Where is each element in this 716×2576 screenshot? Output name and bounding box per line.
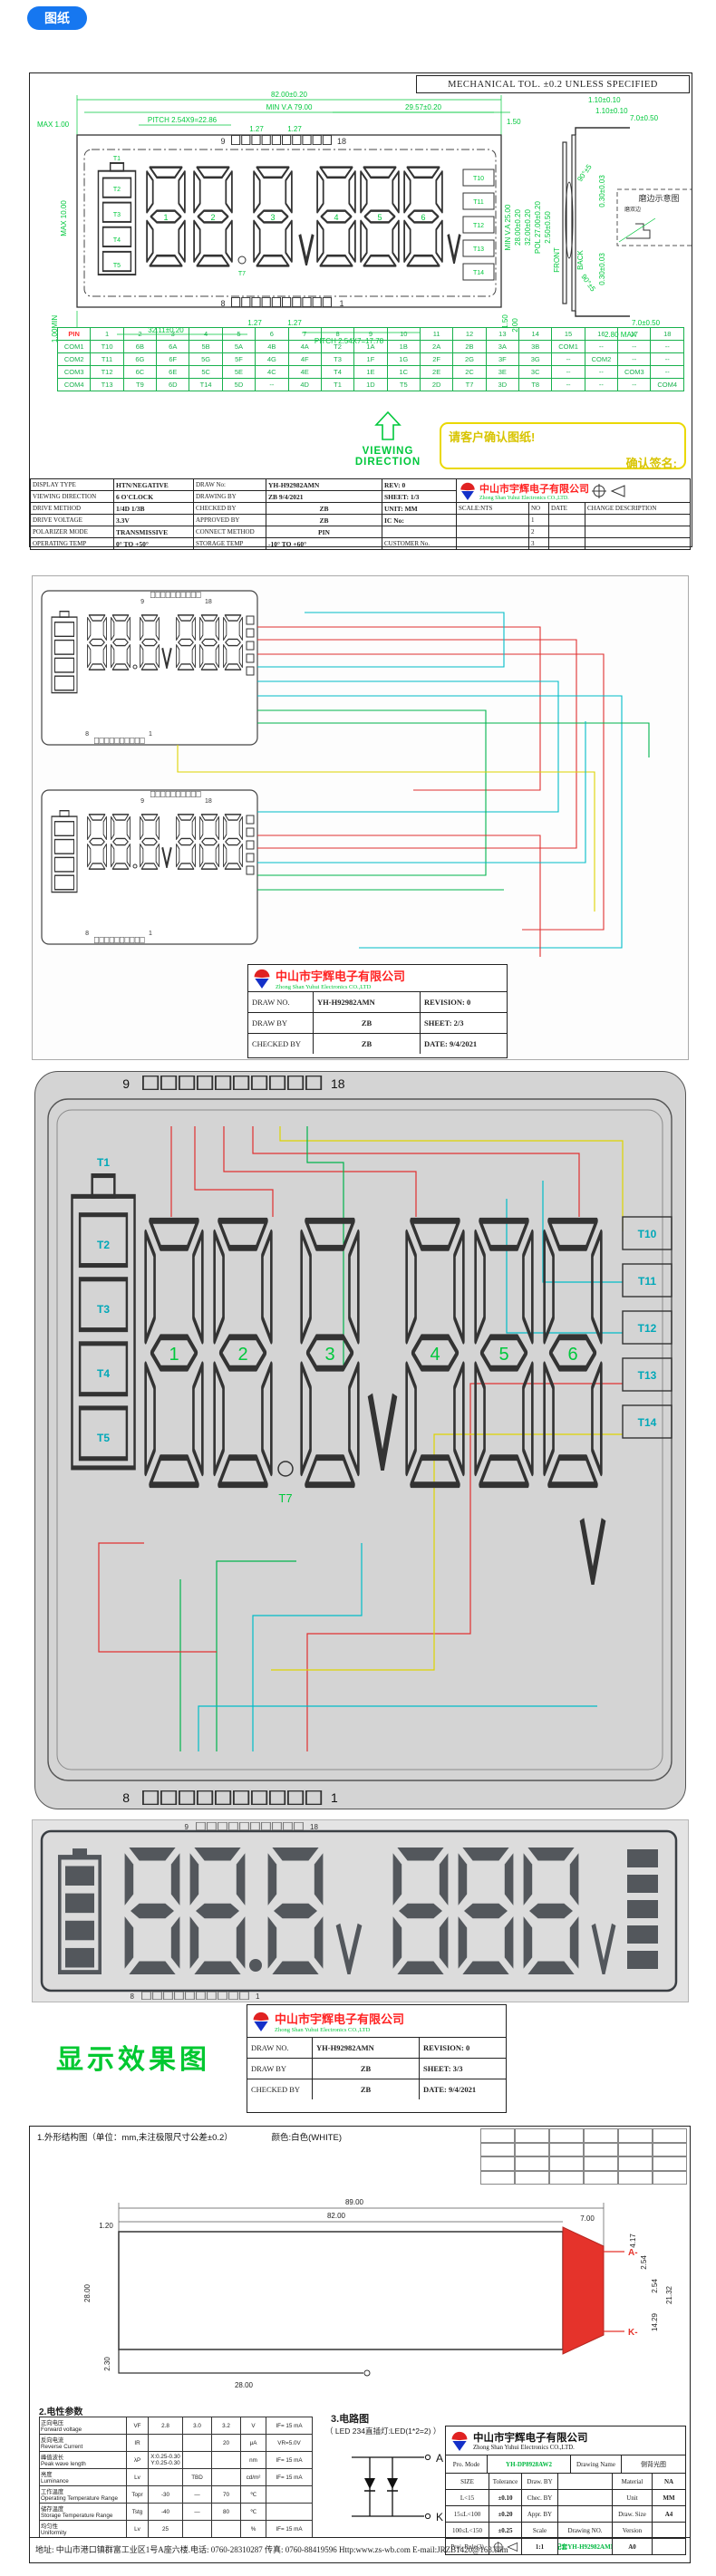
checked-by: ZB: [314, 1034, 421, 1054]
table-cell: --: [585, 366, 617, 379]
spec-label: DISPLAY TYPE: [31, 479, 114, 491]
table-cell: IR: [127, 2435, 149, 2452]
footer-address: 地址: 中山市港口镇群富工业区1号A座六楼.电话: 0760-28310287 …: [30, 2537, 690, 2561]
spec-value: PIN: [266, 526, 382, 538]
backlight-title-block: 中山市宇辉电子有限公司 Zhong Shan Yuhui Electronics…: [445, 2426, 686, 2555]
spec-value: 6 O'CLOCK: [114, 491, 194, 503]
svg-text:MIN V.A 79.00: MIN V.A 79.00: [266, 103, 313, 111]
company-cell: 中山市宇辉电子有限公司 Zhong Shan Yuhui Electronics…: [457, 479, 691, 503]
table-cell: IF= 15 mA: [266, 2417, 313, 2435]
svg-text:1.10±0.10: 1.10±0.10: [595, 107, 628, 115]
svg-text:1: 1: [169, 1345, 179, 1365]
pin-number: 1: [331, 1790, 338, 1805]
table-cell: [266, 2504, 313, 2521]
svg-text:32.00±0.20: 32.00±0.20: [524, 208, 532, 246]
backlight-outline-drawing: A- K- 89.00 82.00 1.20 7.00 28.00 4.17 2…: [37, 2186, 682, 2404]
tolerance-range: L<15: [446, 2490, 489, 2505]
svg-text:T1: T1: [97, 1156, 110, 1169]
svg-text:9: 9: [220, 137, 225, 146]
spec-label: DRAWING BY: [194, 491, 266, 503]
tolerance-range: 15≤L<100: [446, 2506, 489, 2522]
pin-number: 9: [122, 1076, 130, 1091]
empty-cell: [549, 515, 585, 526]
segment-labels: T1 T2 T3 T4 T5 T7 T10 T11 T12 T13 T14 1 …: [97, 1156, 657, 1505]
svg-text:21.32: 21.32: [665, 2285, 673, 2304]
cathode-label: K-: [628, 2328, 638, 2338]
svg-text:FRONT: FRONT: [553, 247, 561, 273]
table-cell: 80: [212, 2504, 241, 2521]
table-cell: T9: [123, 379, 156, 391]
label: SIZE: [446, 2474, 489, 2489]
table-cell: 17: [618, 328, 651, 341]
spec-label: CONNECT METHOD: [194, 526, 266, 538]
table-cell: μA: [241, 2435, 266, 2452]
spec-value: HTN/NEGATIVE: [114, 479, 194, 491]
table-cell: 5D: [222, 379, 255, 391]
table-cell: 18: [651, 328, 684, 341]
table-cell: 工作温度 Operating Temperature Range: [40, 2486, 127, 2504]
table-cell: --: [585, 379, 617, 391]
table-cell: [212, 2452, 241, 2469]
empty-cell: [457, 538, 529, 550]
spec-label: APPROVED BY: [194, 515, 266, 526]
table-cell: 3.2: [212, 2417, 241, 2435]
col-no: NO: [529, 503, 549, 515]
pin-number: 1: [256, 1992, 260, 2001]
label: DRAW BY: [248, 1013, 314, 1033]
spec-unit: UNIT: MM: [382, 503, 457, 515]
svg-text:3: 3: [324, 1345, 334, 1365]
table-cell: 2D: [420, 379, 452, 391]
confirm-signature-label: 确认签名:: [449, 454, 677, 471]
svg-text:T2: T2: [97, 1239, 110, 1251]
unit: MM: [653, 2490, 685, 2505]
revision: REVISION: 0: [420, 2038, 506, 2058]
label: Version: [613, 2523, 653, 2538]
spec-scale: SCALE:NTS: [457, 503, 529, 515]
table-cell: Lv: [127, 2521, 149, 2538]
pin-number: 18: [310, 1823, 318, 1831]
table-cell: T13: [91, 379, 123, 391]
svg-text:2: 2: [210, 213, 215, 222]
svg-text:0.30±0.03: 0.30±0.03: [598, 175, 606, 207]
table-cell: 2B: [453, 341, 486, 353]
row-number: 3: [529, 538, 549, 550]
table-cell: T8: [519, 379, 552, 391]
svg-text:0.30±0.03: 0.30±0.03: [598, 253, 606, 285]
table-cell: 峰值波长 Peak wave length: [40, 2452, 127, 2469]
svg-text:T5: T5: [97, 1432, 110, 1444]
table-cell: T11: [91, 353, 123, 366]
drawing-page: 9 18 8 1 图纸 MECHANICAL TOL. ±0.2 UNLESS …: [0, 0, 716, 2576]
table-cell: 10: [387, 328, 420, 341]
svg-text:T7: T7: [238, 271, 246, 277]
led-connector-wedge: [563, 2227, 604, 2354]
tolerance-value: ±0.25: [489, 2523, 522, 2538]
svg-text:1.10±0.10: 1.10±0.10: [588, 96, 621, 104]
table-cell: 3G: [519, 353, 552, 366]
table-cell: PIN: [58, 328, 91, 341]
svg-text:90°±5: 90°±5: [576, 162, 594, 183]
table-cell: 7: [288, 328, 321, 341]
company-name-en: Zhong Shan Yuhui Electronics CO.,LTD.: [479, 496, 589, 501]
label: Draw. BY: [522, 2474, 558, 2489]
svg-text:BACK: BACK: [576, 249, 585, 269]
table-cell: --: [651, 366, 684, 379]
display-effect-caption: 显示效果图: [56, 2037, 210, 2077]
pin-number: 9: [185, 1823, 189, 1831]
table-cell: 20: [212, 2435, 241, 2452]
spec-value: ZB: [266, 515, 382, 526]
table-cell: 6: [256, 328, 288, 341]
table-cell: 5A: [222, 341, 255, 353]
table-cell: [183, 2435, 212, 2452]
svg-text:MAX 1.00: MAX 1.00: [37, 121, 70, 129]
table-cell: T12: [91, 366, 123, 379]
table-cell: --: [552, 366, 585, 379]
svg-text:4: 4: [334, 213, 338, 222]
company-name-en: Zhong Shan Yuhui Electronics CO.,LTD: [275, 2027, 404, 2033]
customer-confirm-box: 请客户确认图纸! 确认签名:: [440, 422, 686, 469]
table-cell: 2G: [453, 353, 486, 366]
backlight-outline-sheet: 1.外形结构图（单位：mm,未注极限尺寸公差±0.2） 颜色:白色(WHITE)…: [29, 2126, 691, 2563]
table-cell: —: [183, 2486, 212, 2504]
table-cell: 储存温度 Storage Temperature Range: [40, 2504, 127, 2521]
table-cell: -30: [149, 2486, 183, 2504]
svg-text:MIN V.A 25.00: MIN V.A 25.00: [504, 204, 512, 250]
pin-number: 8: [131, 1992, 135, 2001]
table-cell: 11: [420, 328, 452, 341]
table-cell: 6E: [157, 366, 189, 379]
table-cell: 6D: [157, 379, 189, 391]
table-cell: 1A: [354, 341, 387, 353]
pro-mode: YH-DP8928AW2: [488, 2455, 571, 2473]
spec-sheet: SHEET: 1/3: [382, 491, 457, 503]
table-cell: —: [183, 2504, 212, 2521]
table-cell: 4F: [288, 353, 321, 366]
label: Chec. BY: [522, 2490, 558, 2505]
table-cell: 5G: [189, 353, 222, 366]
empty-cell: [549, 538, 585, 550]
up-arrow-icon: [374, 410, 402, 441]
svg-text:POL 27.00±0.20: POL 27.00±0.20: [534, 200, 542, 253]
svg-text:82.00: 82.00: [327, 2212, 346, 2220]
table-cell: Topr: [127, 2486, 149, 2504]
spec-value: YH-H92982AMN: [266, 479, 382, 491]
spec-value: 3.3V: [114, 515, 194, 526]
draw-by: ZB: [313, 2059, 420, 2079]
company-logo-icon: [459, 481, 477, 501]
enlarged-wiring-drawing: 9 18 8 1: [35, 1072, 685, 1809]
table-cell: 1B: [387, 341, 420, 353]
table-cell: 3: [157, 328, 189, 341]
table-cell: λP: [127, 2452, 149, 2469]
tolerance-value: ±0.10: [489, 2490, 522, 2505]
empty-cell: [549, 526, 585, 538]
svg-text:28.00: 28.00: [83, 2283, 92, 2302]
led-circuit-diagram: A K: [338, 2444, 456, 2534]
table-cell: --: [651, 353, 684, 366]
table-cell: 8: [321, 328, 353, 341]
spec-title-block: DISPLAY TYPE HTN/NEGATIVE DRAW No: YH-H9…: [30, 478, 691, 550]
svg-text:T12: T12: [473, 223, 484, 229]
table-cell: T1: [321, 379, 353, 391]
table-cell: --: [651, 341, 684, 353]
sheet-no: SHEET: 2/3: [421, 1013, 507, 1033]
table-cell: [212, 2469, 241, 2486]
table-cell: 1: [91, 328, 123, 341]
table-cell: [266, 2486, 313, 2504]
sheet1-mechanical-drawing: MECHANICAL TOL. ±0.2 UNLESS SPECIFIED: [29, 72, 692, 547]
table-cell: X:0.25-0.30 Y:0.25-0.30: [149, 2452, 183, 2469]
table-cell: COM3: [618, 366, 651, 379]
table-cell: [183, 2521, 212, 2538]
label: DRAW NO.: [247, 2038, 313, 2058]
label: CHECKED BY: [248, 1034, 314, 1054]
svg-text:T3: T3: [113, 212, 121, 218]
table-cell: 4D: [288, 379, 321, 391]
table-cell: T14: [189, 379, 222, 391]
label: Draw. Size: [613, 2506, 653, 2522]
table-cell: 13: [486, 328, 518, 341]
grind-schematic: 磨边示意图 磨双边: [617, 189, 692, 246]
table-cell: --: [585, 341, 617, 353]
display-effect-panel: 9 18 8 1: [32, 1819, 689, 2002]
col-date: DATE: [549, 503, 585, 515]
table-cell: T3: [321, 353, 353, 366]
spec-value: 0° TO +50°: [114, 538, 194, 550]
svg-text:7.0±0.50: 7.0±0.50: [632, 319, 661, 327]
table-cell: 3A: [486, 341, 518, 353]
svg-text:T11: T11: [638, 1275, 656, 1288]
svg-text:1.27: 1.27: [249, 125, 264, 133]
table-cell: 1F: [354, 353, 387, 366]
led-symbol: [387, 2478, 398, 2489]
drawing-name: 侧背光图: [622, 2455, 685, 2473]
table-cell: COM4: [58, 379, 91, 391]
pin-number: 8: [122, 1790, 130, 1805]
material: NA: [653, 2474, 685, 2489]
table-cell: IF= 15 mA: [266, 2521, 313, 2538]
svg-text:82.00±0.20: 82.00±0.20: [271, 91, 308, 99]
table-cell: COM2: [585, 353, 617, 366]
confirm-line1: 请客户确认图纸!: [449, 428, 677, 445]
pin-assignment-table: PIN123456789101112131415161718COM1T106B6…: [57, 327, 684, 391]
electrical-params-title: 2.电性参数: [39, 2404, 82, 2417]
table-cell: 1E: [354, 366, 387, 379]
label: Appr. BY: [522, 2506, 558, 2522]
sheet-no: SHEET: 3/3: [420, 2059, 506, 2079]
svg-text:29.57±0.20: 29.57±0.20: [405, 103, 442, 111]
electrical-params-table: 正向电压 Forward voltageVF2.83.03.2VIF= 15 m…: [39, 2417, 313, 2538]
signal-bars: [627, 1849, 658, 1969]
label: Tolerance: [489, 2474, 522, 2489]
svg-text:1: 1: [163, 213, 168, 222]
table-cell: 15: [552, 328, 585, 341]
spec-value: 1/4D 1/3B: [114, 503, 194, 515]
svg-text:T4: T4: [97, 1367, 110, 1380]
table-cell: Tstg: [127, 2504, 149, 2521]
svg-text:2.54: 2.54: [651, 2279, 659, 2293]
empty-cell: [457, 526, 529, 538]
wiring-views: [33, 576, 688, 964]
table-cell: -40: [149, 2504, 183, 2521]
svg-text:MAX 10.00: MAX 10.00: [60, 200, 68, 236]
table-cell: 正向电压 Forward voltage: [40, 2417, 127, 2435]
table-cell: 2C: [453, 366, 486, 379]
table-cell: 6G: [123, 353, 156, 366]
svg-text:PITCH 2.54X9=22.86: PITCH 2.54X9=22.86: [148, 116, 218, 124]
table-cell: IF= 15 mA: [266, 2469, 313, 2486]
table-cell: --: [618, 379, 651, 391]
table-cell: 4: [189, 328, 222, 341]
tolerance-value: ±0.20: [489, 2506, 522, 2522]
table-cell: 均匀性 Uniformity: [40, 2521, 127, 2538]
table-cell: 亮度 Luminance: [40, 2469, 127, 2486]
table-cell: 5: [222, 328, 255, 341]
empty-cell: [585, 515, 691, 526]
empty-cell: [585, 538, 691, 550]
circuit-subtitle: （ LED 234直插灯:LED(1*2=2) ）: [325, 2426, 440, 2436]
empty-cell: [558, 2506, 613, 2522]
table-cell: COM4: [651, 379, 684, 391]
table-cell: 4G: [256, 353, 288, 366]
table-cell: COM1: [58, 341, 91, 353]
label: CHECKED BY: [247, 2079, 313, 2099]
table-cell: 16: [585, 328, 617, 341]
sheet3-enlarged-wiring: 9 18 8 1: [34, 1071, 686, 1809]
table-cell: 反向电流 Reverse Current: [40, 2435, 127, 2452]
svg-text:T10: T10: [638, 1228, 657, 1240]
table-cell: 9: [354, 328, 387, 341]
label: Drawing Name: [571, 2455, 622, 2473]
table-cell: 5B: [189, 341, 222, 353]
table-cell: T2: [321, 341, 353, 353]
svg-text:T7: T7: [278, 1491, 292, 1505]
draw-no: YH-H92982AMN: [313, 2038, 420, 2058]
spec-value: TRANSMISSIVE: [114, 526, 194, 538]
svg-text:T3: T3: [97, 1303, 110, 1316]
led-symbol: [364, 2478, 375, 2489]
table-cell: 3C: [519, 366, 552, 379]
svg-text:T4: T4: [113, 237, 121, 244]
anode-label: A-: [628, 2248, 638, 2258]
table-cell: nm: [241, 2452, 266, 2469]
table-cell: 6C: [123, 366, 156, 379]
table-cell: 1G: [387, 353, 420, 366]
revision: REVISION: 0: [421, 992, 507, 1012]
svg-text:1.27: 1.27: [247, 319, 262, 327]
svg-text:2.54: 2.54: [640, 2255, 648, 2270]
date: DATE: 9/4/2021: [421, 1034, 507, 1054]
svg-text:7.0±0.50: 7.0±0.50: [630, 114, 659, 122]
table-cell: 1C: [387, 366, 420, 379]
table-cell: V: [241, 2417, 266, 2435]
table-cell: T10: [91, 341, 123, 353]
viewing-direction: VIEWING DIRECTION: [329, 410, 447, 468]
projection-symbol-icon: [592, 484, 626, 498]
table-cell: 3F: [486, 353, 518, 366]
svg-text:T1: T1: [113, 156, 121, 162]
table-cell: COM3: [58, 366, 91, 379]
spec-value: ZB: [266, 503, 382, 515]
spec-label: DRIVE VOLTAGE: [31, 515, 114, 526]
draw-by: ZB: [314, 1013, 421, 1033]
empty-cell: [585, 526, 691, 538]
table-cell: Lv: [127, 2469, 149, 2486]
table-cell: --: [552, 353, 585, 366]
table-cell: [212, 2521, 241, 2538]
table-cell: 3D: [486, 379, 518, 391]
table-cell: 12: [453, 328, 486, 341]
date: DATE: 9/4/2021: [420, 2079, 506, 2099]
table-cell: 6B: [123, 341, 156, 353]
checked-by: ZB: [313, 2079, 420, 2099]
table-cell: 6F: [157, 353, 189, 366]
label: Drawing NO.: [558, 2523, 613, 2538]
table-cell: --: [256, 379, 288, 391]
table-cell: 6A: [157, 341, 189, 353]
svg-text:89.00: 89.00: [345, 2198, 364, 2206]
table-cell: 25: [149, 2521, 183, 2538]
spec-label: DRIVE METHOD: [31, 503, 114, 515]
table-cell: ℃: [241, 2504, 266, 2521]
table-cell: TBD: [183, 2469, 212, 2486]
col-change-description: CHANGE DESCRIPTION: [585, 503, 691, 515]
terminal-a-label: A: [436, 2452, 443, 2465]
table-cell: COM1: [552, 341, 585, 353]
table-cell: COM2: [58, 353, 91, 366]
label: DRAW BY: [247, 2059, 313, 2079]
draw-no: YH-H92982AMN: [314, 992, 421, 1012]
table-cell: 4C: [256, 366, 288, 379]
label: Pro. Mode: [446, 2455, 488, 2473]
viewing-direction-label: VIEWING DIRECTION: [329, 446, 447, 468]
svg-text:1: 1: [339, 299, 343, 308]
empty-cell: [457, 515, 529, 526]
svg-text:6: 6: [567, 1345, 577, 1365]
svg-text:7.00: 7.00: [580, 2214, 595, 2223]
table-cell: 4A: [288, 341, 321, 353]
table-cell: cd/m²: [241, 2469, 266, 2486]
empty-cell: [558, 2490, 613, 2505]
table-cell: --: [618, 341, 651, 353]
row-number: 1: [529, 515, 549, 526]
outline-heading: 1.外形结构图（单位：mm,未注极限尺寸公差±0.2） 颜色:白色(WHITE): [37, 2130, 342, 2143]
table-cell: 2.8: [149, 2417, 183, 2435]
svg-text:2.50±0.50: 2.50±0.50: [544, 211, 552, 244]
table-cell: IF= 15 mA: [266, 2452, 313, 2469]
svg-text:2.30: 2.30: [103, 2357, 111, 2371]
spec-rev: REV: 0: [382, 479, 457, 491]
label: Unit: [613, 2490, 653, 2505]
spec-label: STORAGE TEMP: [194, 538, 266, 550]
table-cell: 3E: [486, 366, 518, 379]
row-number: 2: [529, 526, 549, 538]
svg-text:T13: T13: [638, 1369, 657, 1382]
table-cell: 4B: [256, 341, 288, 353]
company-name-en: Zhong Shan Yuhui Electronics CO.,LTD.: [473, 2445, 588, 2451]
segment-labels: T1 T2 T3 T4 T5 T7 T10 T11 T12 T13 T14 1 …: [113, 156, 484, 277]
table-cell: 1D: [354, 379, 387, 391]
table-cell: 3.0: [183, 2417, 212, 2435]
svg-text:5: 5: [377, 213, 382, 222]
svg-text:T12: T12: [638, 1322, 657, 1335]
table-cell: T5: [387, 379, 420, 391]
svg-text:3: 3: [270, 213, 275, 222]
spec-label: CHECKED BY: [194, 503, 266, 515]
table-cell: 3B: [519, 341, 552, 353]
